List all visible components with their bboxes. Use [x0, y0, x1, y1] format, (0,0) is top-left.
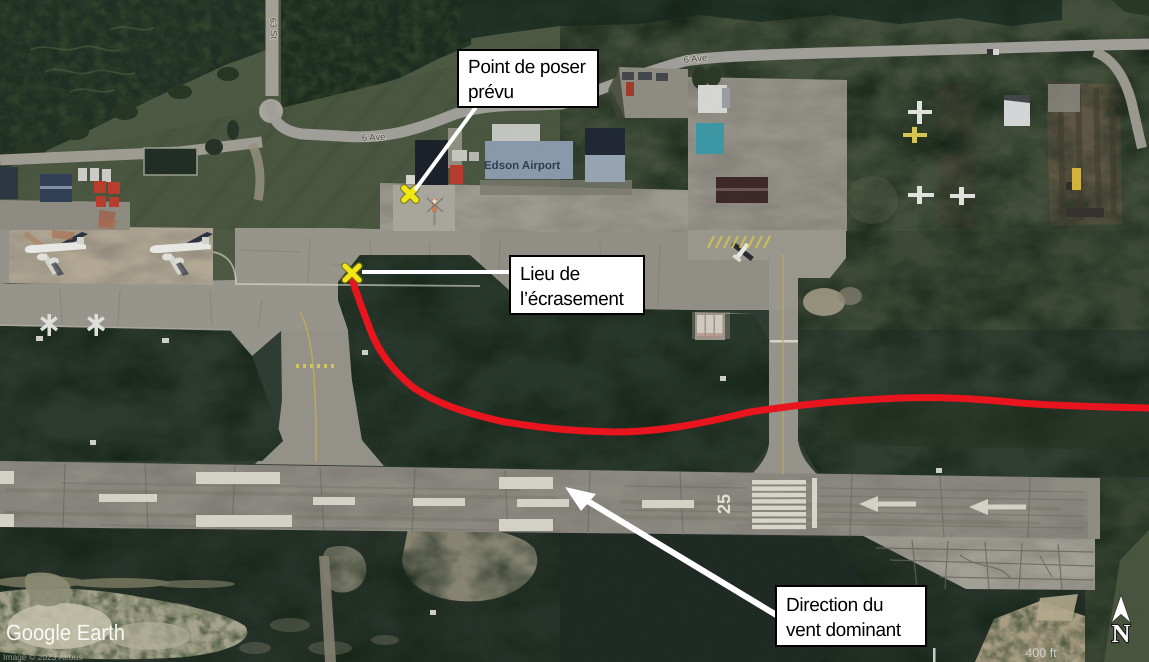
svg-text:Lieu de: Lieu de [520, 264, 580, 285]
svg-text:prévu: prévu [468, 82, 514, 103]
svg-text:400 ft: 400 ft [1025, 646, 1057, 660]
svg-text:l’écrasement: l’écrasement [520, 289, 625, 310]
svg-text:Image © 2023 Airbus: Image © 2023 Airbus [3, 652, 83, 662]
svg-text:N: N [1112, 619, 1131, 648]
svg-text:Direction du: Direction du [786, 595, 883, 616]
svg-text:Google Earth: Google Earth [6, 620, 125, 645]
svg-text:Point de poser: Point de poser [468, 57, 587, 78]
svg-text:vent dominant: vent dominant [786, 620, 902, 641]
